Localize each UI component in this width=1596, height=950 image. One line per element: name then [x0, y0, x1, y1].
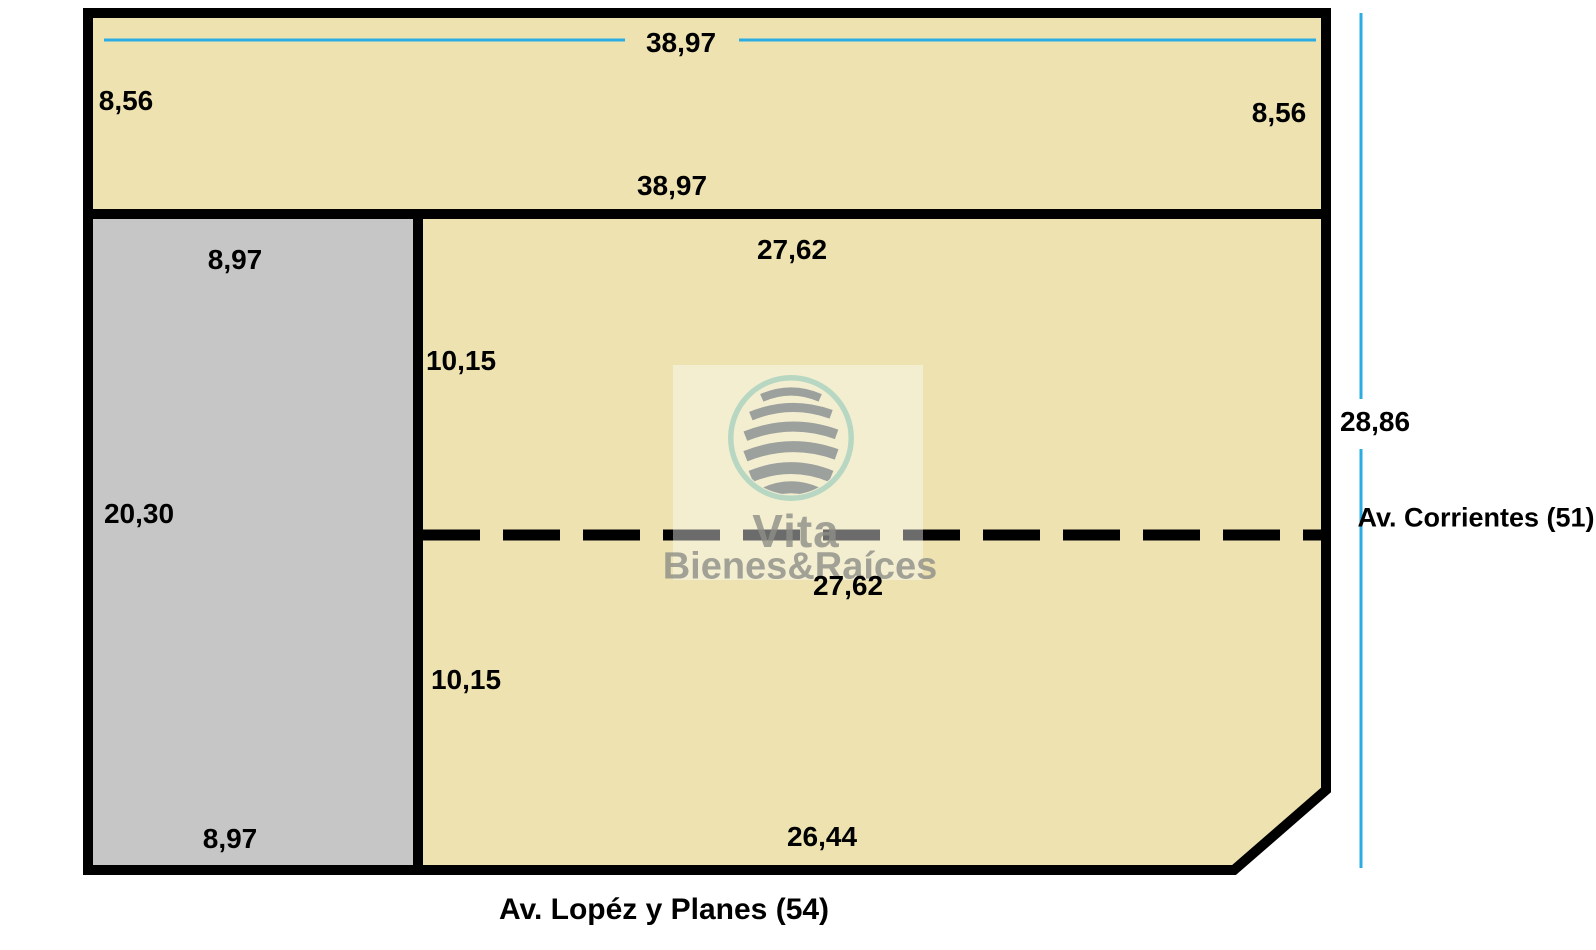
dim-strip-bottom-width: 38,97 [637, 170, 707, 202]
watermark-subtitle: Bienes&Raíces [663, 546, 938, 589]
dim-mid-top-width: 27,62 [757, 234, 827, 266]
dim-gray-bottom-width: 8,97 [203, 823, 258, 855]
dim-lower-bottom-width: 26,44 [787, 821, 857, 853]
dim-left-top-height: 8,56 [99, 85, 154, 117]
watermark: Vita Bienes&Raíces [673, 365, 923, 580]
lot-plan-page: Vita Bienes&Raíces 38,97 8,56 8,56 38,97… [0, 0, 1596, 950]
dim-mid-left-height: 10,15 [426, 345, 496, 377]
dim-right-total-height: 28,86 [1340, 406, 1410, 438]
street-label-lopez-y-planes: Av. Lopéz y Planes (54) [499, 893, 829, 927]
dim-gray-left-height: 20,30 [104, 498, 174, 530]
left-gray-parcel-shape [88, 214, 418, 870]
street-label-corrientes: Av. Corrientes (51) [1357, 503, 1594, 534]
dim-lower-left-height: 10,15 [431, 664, 501, 696]
dim-top-width: 38,97 [646, 27, 716, 59]
dim-lower-top-width: 27,62 [813, 570, 883, 602]
globe-icon [718, 365, 864, 511]
dim-right-top-height: 8,56 [1252, 97, 1307, 129]
dim-gray-top-width: 8,97 [208, 244, 263, 276]
